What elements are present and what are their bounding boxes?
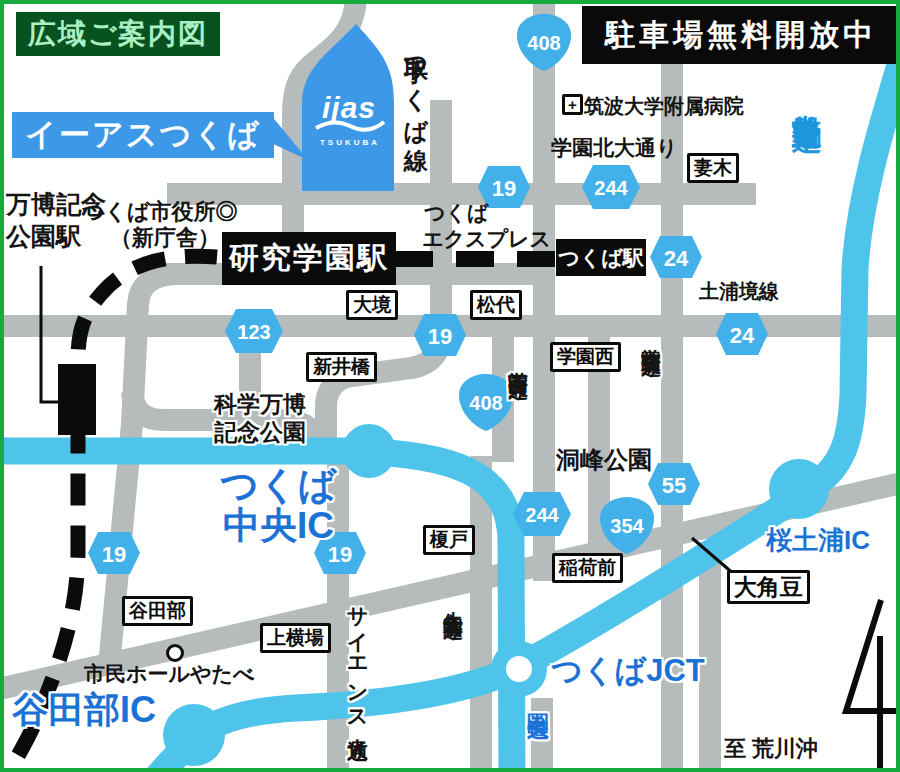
svg-text:24: 24 — [730, 323, 755, 348]
kenkyu-gakuen-station-box: 研究学園駅 — [222, 232, 396, 285]
svg-text:19: 19 — [428, 324, 452, 349]
map-title-box: 広域ご案内図 — [16, 12, 220, 56]
city-hall-label: つくば市役所◎ — [82, 200, 238, 225]
civic-hall-marker — [166, 644, 184, 662]
expo-park-label-1: 科学万博 — [214, 392, 306, 418]
tsukuba-jct-label: つくばJCT — [551, 654, 705, 689]
hospital-icon: + — [562, 94, 583, 115]
route-shield-19-west: 19 — [88, 532, 140, 574]
tsukuba-station-box: つくば駅 — [556, 239, 646, 276]
svg-text:123: 123 — [237, 321, 270, 343]
banpaku-station-label-2: 公園駅 — [6, 222, 81, 250]
iias-logo-sub: TSUKUBA — [320, 138, 380, 147]
yatabe-ic-label: 谷田部IC — [12, 690, 156, 730]
gakuen-kita-odori-label: 学園北大通り — [551, 136, 678, 160]
tsuchiura-sakai-line-label: 土浦境線 — [699, 280, 779, 302]
toride-tsukuba-line-label: 取手つくば線 — [402, 38, 429, 132]
route-shield-244-top: 244 — [582, 165, 640, 209]
sakura-tsuchiura-ic-label: 桜土浦IC — [766, 526, 870, 555]
yatabe-box: 谷田部 — [122, 596, 193, 626]
inarimae-box: 稲荷前 — [552, 553, 623, 583]
araibashi-box: 新井橋 — [306, 352, 377, 382]
route-shield-19-center: 19 — [414, 314, 466, 356]
tx-line-label-1: つくば — [424, 201, 488, 225]
tsumagi-box: 妻木 — [687, 153, 739, 183]
joban-expressway-label: 常磐自動車道 — [790, 90, 824, 102]
svg-text:244: 244 — [594, 177, 628, 199]
big-numeral-4 — [846, 600, 900, 772]
gakuen-higashi-odori-label: 学園東大通り — [640, 333, 662, 368]
matsushiro-box: 松代 — [470, 290, 522, 320]
civic-hall-label: 市民ホールやたべ — [84, 662, 254, 686]
kamiyokoba-box: 上横場 — [260, 623, 331, 653]
gakuen-nishi-odori-label: 学園西大通り — [507, 356, 529, 391]
route-shield-24-station: 24 — [650, 236, 702, 278]
kenodo-label: 圏央道 — [525, 696, 550, 702]
science-odori-label: サイエンス大通り — [346, 592, 370, 752]
jct-ring-tsukuba — [491, 641, 547, 697]
svg-text:19: 19 — [102, 542, 126, 567]
ozakai-box: 大境 — [346, 290, 398, 320]
route-shield-123: 123 — [225, 309, 283, 353]
parking-notice-banner: 駐車場無料開放中 — [582, 6, 900, 64]
iias-banner-text: イーアスつくば — [25, 118, 260, 153]
svg-text:19: 19 — [492, 176, 516, 201]
svg-text:244: 244 — [525, 504, 559, 526]
route-shield-55: 55 — [648, 463, 700, 505]
ic-marker-tsukuba-chuo — [342, 424, 396, 478]
route-shield-408-top: 408 — [517, 14, 571, 71]
tsukuba-chuo-ic-label-2: 中央IC — [223, 505, 334, 546]
svg-text:55: 55 — [662, 473, 686, 498]
parking-notice-text: 駐車場無料開放中 — [605, 18, 877, 52]
city-hall-sub-label: （新庁舎） — [110, 226, 220, 251]
svg-text:408: 408 — [527, 32, 560, 54]
map-title: 広域ご案内図 — [28, 18, 209, 49]
route-shield-24-east: 24 — [716, 313, 768, 355]
svg-text:24: 24 — [664, 246, 689, 271]
ic-marker-sakura-tsuchiura — [769, 459, 829, 519]
to-arakawaoki-label: 至 荒川沖 — [724, 737, 818, 762]
enokido-box: 榎戸 — [423, 525, 475, 555]
area-guide-map: ijas TSUKUBA 408 — [0, 0, 900, 772]
sasagi-box: 大角豆 — [727, 570, 810, 604]
hospital-label: 筑波大学附属病院 — [584, 95, 744, 117]
svg-text:354: 354 — [610, 515, 644, 537]
tx-line-label-2: エクスプレス — [422, 227, 551, 251]
banpaku-station-marker — [58, 364, 96, 435]
gakuen-nishi-box: 学園西 — [550, 342, 621, 372]
iias-logo-text: ijas — [322, 91, 376, 124]
tsukuba-chuo-ic-label-1: つくば — [220, 464, 337, 507]
ic-marker-yatabe — [163, 704, 225, 766]
svg-text:408: 408 — [469, 392, 502, 414]
ushiku-gakuen-dori-label: 牛久学園通り — [442, 596, 464, 631]
expo-park-label-2: 記念公園 — [214, 420, 306, 446]
doho-park-label: 洞峰公園 — [556, 447, 652, 474]
route-shield-244-mid: 244 — [513, 492, 571, 536]
iias-banner: イーアスつくば — [12, 112, 274, 158]
